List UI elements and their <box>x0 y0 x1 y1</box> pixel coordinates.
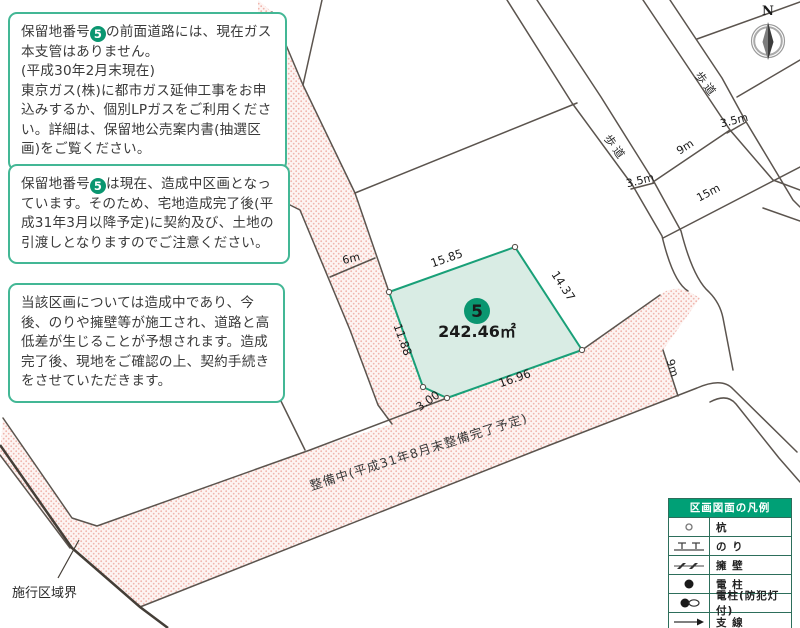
legend-label: 支 線 <box>710 615 791 628</box>
legend-row-guy-wire: 支 線 <box>669 612 791 628</box>
legend-label: 擁 壁 <box>710 558 791 573</box>
lot-number-chip: 5 <box>90 178 106 194</box>
sidewalk-label-right: 歩道 <box>692 69 721 101</box>
note-grading-warning: 当該区画については造成中であり、今後、のりや擁壁等が施工され、道路と高低差が生じ… <box>8 283 285 403</box>
note-gas-supply: 保留地番号5の前面道路には、現在ガス本支管はありません。 (平成30年2月末現在… <box>8 12 287 171</box>
utility-pole-crime-light-icon <box>669 594 710 612</box>
legend-label: 杭 <box>710 520 791 535</box>
map-legend: 区画図面の凡例 杭 の り 擁 壁 <box>668 498 792 628</box>
lot-map-page: 5 242.46㎡ 15.85 14.37 16.96 11.88 3.00 6… <box>0 0 800 628</box>
north-compass: N <box>752 4 785 60</box>
note-lead: 保留地番号 <box>21 24 90 40</box>
retaining-wall-icon <box>669 556 710 574</box>
legend-row-stake: 杭 <box>669 517 791 536</box>
lot-number-chip: 5 <box>90 26 106 42</box>
stake-circle-icon <box>669 518 710 536</box>
road-width-15m: 15m <box>694 181 722 204</box>
guy-wire-icon <box>669 613 710 628</box>
note-lead: 保留地番号 <box>21 176 90 192</box>
dim-right: 14.37 <box>549 268 579 303</box>
parcel-number: 5 <box>471 302 483 322</box>
project-boundary-label: 施行区域界 <box>12 586 77 601</box>
slope-nori-icon <box>669 537 710 555</box>
legend-label: の り <box>710 539 791 554</box>
north-label: N <box>762 4 774 19</box>
note-body: 当該区画については造成中であり、今後、のりや擁壁等が施工され、道路と高低差が生じ… <box>21 295 269 389</box>
sidewalk-width-left: 3.5m <box>625 171 656 190</box>
legend-title: 区画図面の凡例 <box>669 499 791 517</box>
legend-label: 電柱(防犯灯付) <box>710 588 791 618</box>
note-body: の前面道路には、現在ガス本支管はありません。 (平成30年2月末現在) 東京ガス… <box>21 24 272 157</box>
legend-row-retaining-wall: 擁 壁 <box>669 555 791 574</box>
sidewalk-width-right: 3.5m <box>719 111 750 130</box>
parcel-area: 242.46㎡ <box>438 322 516 341</box>
utility-pole-icon <box>669 575 710 593</box>
legend-row-slope: の り <box>669 536 791 555</box>
note-under-construction: 保留地番号5は現在、造成中区画となっています。そのため、宅地造成完了後(平成31… <box>8 164 290 264</box>
legend-row-utility-pole-light: 電柱(防犯灯付) <box>669 593 791 612</box>
